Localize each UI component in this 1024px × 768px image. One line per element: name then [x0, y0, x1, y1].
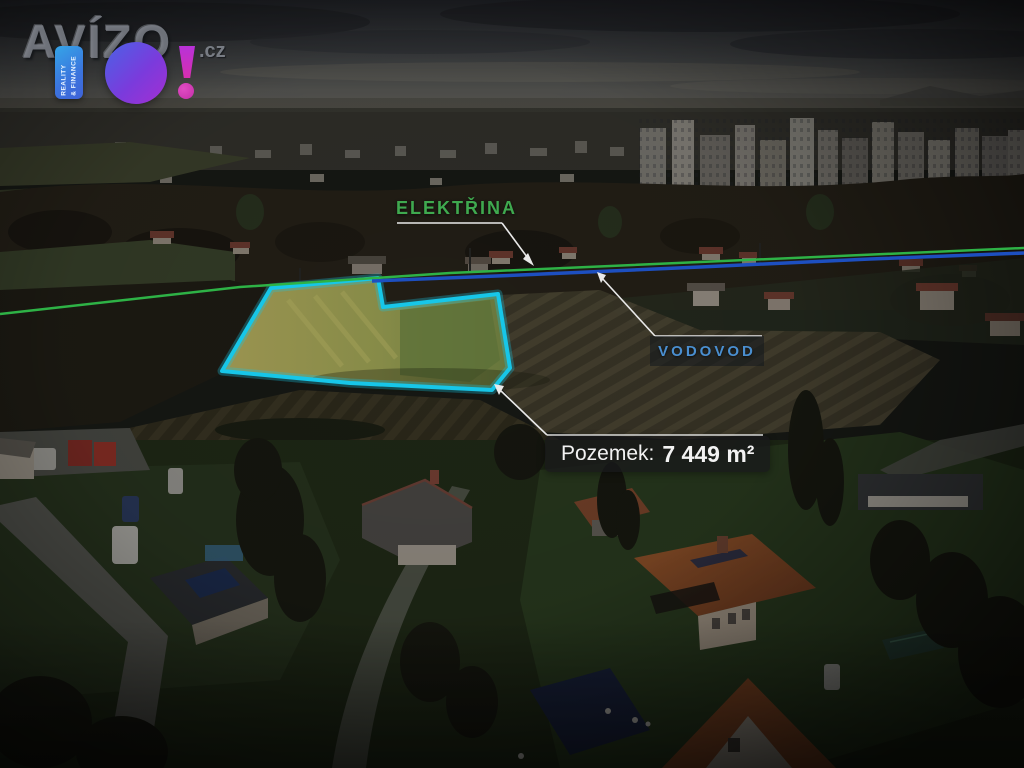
logo-bo-o-circle	[105, 42, 167, 104]
water-label: VODOVOD	[650, 336, 764, 366]
parcel-area-badge: Pozemek: 7 449 m²	[545, 436, 770, 472]
parcel-area-value: 7 449 m²	[662, 441, 754, 468]
logo-bo: REALITY & FINANCE	[55, 45, 235, 101]
aerial-photo-scene	[0, 0, 1024, 768]
logo-b-tagline: REALITY & FINANCE	[59, 48, 79, 96]
avizo-logo: AVÍZO .cz REALITY & FINANCE	[22, 12, 252, 112]
parcel-area-label: Pozemek:	[561, 442, 654, 466]
logo-bo-exclamation-bar	[179, 46, 195, 78]
logo-b-tagline-line1: REALITY	[59, 48, 69, 96]
logo-b-tagline-line2: & FINANCE	[69, 48, 79, 96]
logo-bo-exclamation-dot	[178, 83, 194, 99]
electricity-label: ELEKTŘINA	[396, 198, 517, 219]
logo-bo-b-block: REALITY & FINANCE	[55, 46, 83, 99]
listing-photo: AVÍZO .cz REALITY & FINANCE ELEKTŘINA VO…	[0, 0, 1024, 768]
